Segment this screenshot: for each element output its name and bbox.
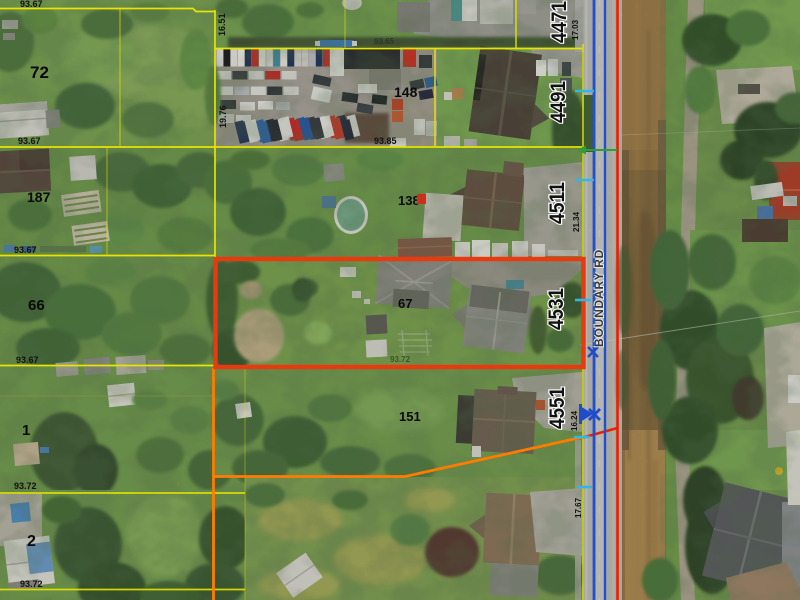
svg-text:93.65: 93.65 xyxy=(374,37,395,46)
svg-text:4531: 4531 xyxy=(545,288,568,330)
svg-text:19.76: 19.76 xyxy=(218,105,228,128)
svg-text:16.24: 16.24 xyxy=(570,410,579,431)
svg-text:93.72: 93.72 xyxy=(20,579,43,589)
svg-text:93.72: 93.72 xyxy=(390,355,411,364)
svg-text:4471: 4471 xyxy=(548,1,571,43)
svg-text:187: 187 xyxy=(27,189,51,205)
svg-text:4551: 4551 xyxy=(546,387,569,429)
svg-text:93.67: 93.67 xyxy=(20,0,43,9)
svg-text:21.34: 21.34 xyxy=(572,211,581,232)
svg-text:17.67: 17.67 xyxy=(574,497,583,518)
svg-text:2: 2 xyxy=(27,533,36,550)
svg-text:138: 138 xyxy=(398,193,420,208)
svg-text:4491: 4491 xyxy=(547,81,570,123)
svg-text:72: 72 xyxy=(30,63,49,82)
svg-text:93.67: 93.67 xyxy=(16,355,39,365)
svg-text:93.67: 93.67 xyxy=(18,136,41,146)
svg-text:67: 67 xyxy=(398,296,412,311)
svg-text:1: 1 xyxy=(22,422,30,439)
svg-text:93.67: 93.67 xyxy=(14,245,37,255)
svg-text:66: 66 xyxy=(28,297,45,314)
svg-text:16.51: 16.51 xyxy=(217,13,227,36)
svg-text:93.85: 93.85 xyxy=(374,136,397,146)
svg-text:17.03: 17.03 xyxy=(571,19,580,40)
svg-text:148: 148 xyxy=(394,84,418,100)
svg-text:151: 151 xyxy=(399,409,421,424)
svg-text:4511: 4511 xyxy=(546,182,569,224)
svg-text:93.72: 93.72 xyxy=(14,481,37,491)
